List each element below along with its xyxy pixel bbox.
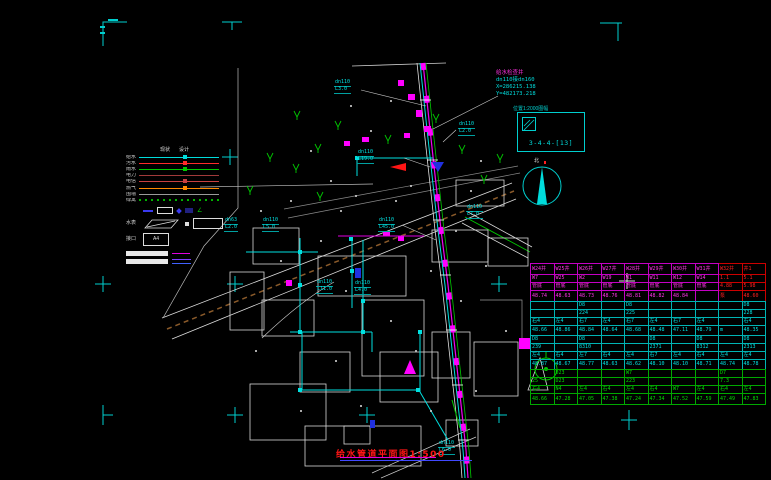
table-cell: 48.84 <box>672 291 696 302</box>
legend: 现状 设计 给水污水雨水电力电信燃气围墙绿篱 ∠ 水表 接口 A4 <box>126 146 226 266</box>
table-cell: 47.38 <box>601 394 625 405</box>
table-cell <box>648 302 672 310</box>
table-cell <box>578 378 602 386</box>
table-cell: W24井 <box>531 264 555 275</box>
table-cell: D7 <box>719 370 743 378</box>
legend-symbols-row: ∠ <box>126 207 226 215</box>
legend-line-sample <box>139 169 219 170</box>
table-cell: 47.34 <box>648 394 672 405</box>
rect-outline-symbol <box>193 218 223 229</box>
legend-line-marker <box>183 179 187 183</box>
table-cell: D8 <box>648 336 672 344</box>
table-section-4: D23W7D725D232237.3右4N4左4右4左4右4W7左4右4左448… <box>530 369 766 405</box>
table-cell: W25 <box>554 275 578 283</box>
legend-row-label: 绿篱 <box>126 198 139 203</box>
table-cell: N4 <box>554 386 578 394</box>
table-cell: 48.74 <box>531 291 555 302</box>
north-label: 北 <box>534 157 539 164</box>
table-cell: 48.82 <box>648 291 672 302</box>
table-cell: 管底 <box>672 283 696 291</box>
table-cell: 右7 <box>578 318 602 326</box>
purple-line-sample <box>172 259 191 260</box>
square-symbol <box>185 222 189 226</box>
table-cell: 左4 <box>601 318 625 326</box>
table-cell <box>672 378 696 386</box>
table-cell: 239 <box>531 344 555 352</box>
drawing-title: 给水管道平面图1:500 <box>336 450 446 460</box>
table-cell: W25井 <box>554 264 578 275</box>
callout-x-coordinate: X=286215.138 <box>496 84 586 91</box>
table-cell: W7 <box>625 370 649 378</box>
table-cell: W26井 <box>578 264 602 275</box>
table-cell: 1.1 <box>719 275 743 283</box>
table-cell <box>695 310 719 318</box>
table-cell: 48.64 <box>601 326 625 336</box>
table-cell: D23 <box>554 378 578 386</box>
table-cell: 48.86 <box>554 326 578 336</box>
table-cell: 47.52 <box>672 394 696 405</box>
legend-line-sample <box>139 157 219 158</box>
table-cell: 管底 <box>578 283 602 291</box>
table-cell <box>672 336 696 344</box>
title-underline-blue <box>340 460 472 461</box>
block-symbol <box>185 208 193 213</box>
table-cell: 4.88 <box>719 283 743 291</box>
manhole-callout: 给水检查井 dn110接dn160 X=286215.138 Y=482173.… <box>496 70 586 98</box>
table-cell: 48.48 <box>648 326 672 336</box>
table-cell: 5.98 <box>742 283 766 291</box>
flow-arrow <box>390 163 406 171</box>
table-cell: 48.62 <box>625 360 649 370</box>
legend-row-label: 给水 <box>126 155 139 160</box>
table-cell: 25 <box>531 378 555 386</box>
table-cell: 47.24 <box>625 394 649 405</box>
table-cell: 管底 <box>531 283 555 291</box>
diamond-symbol <box>176 208 182 214</box>
table-cell <box>601 370 625 378</box>
table-cell: 224 <box>578 310 602 318</box>
table-cell: 左4 <box>531 352 555 360</box>
table-cell: 泵 <box>719 291 743 302</box>
table-cell: 右4 <box>742 318 766 326</box>
sheet-index-box: 位置1:2000图幅 3-4-4-[13] <box>517 112 585 152</box>
table-cell <box>719 318 743 326</box>
table-cell: 左4 <box>578 386 602 394</box>
table-cell <box>648 370 672 378</box>
table-cell: 48.66 <box>531 326 555 336</box>
table-cell <box>695 302 719 310</box>
table-cell: D8 <box>578 302 602 310</box>
table-cell: 管底 <box>625 283 649 291</box>
table-section-2: D8D8D8224225228右4左4右7左4右7左4右7左4右448.6648… <box>530 301 766 336</box>
table-cell: W27井 <box>601 264 625 275</box>
legend-header-design: 设计 <box>179 146 189 154</box>
table-cell <box>625 344 649 352</box>
table-cell: 223 <box>625 378 649 386</box>
table-cell: 48.60 <box>742 291 766 302</box>
angle-symbol: ∠ <box>197 207 202 214</box>
sewer-clusters <box>286 80 530 374</box>
table-cell: 右4 <box>695 352 719 360</box>
table-cell <box>672 370 696 378</box>
table-cell <box>531 310 555 318</box>
table-cell: W11 <box>648 275 672 283</box>
legend-headers: 现状 设计 <box>160 146 226 154</box>
table-cell: 48.35 <box>742 326 766 336</box>
table-cell: 48.74 <box>719 360 743 370</box>
legend-row-label: 污水 <box>126 161 139 166</box>
blue-line-sample <box>172 263 191 264</box>
table-cell <box>695 378 719 386</box>
table-cell: 47.11 <box>672 326 696 336</box>
table-cell: 左4 <box>742 352 766 360</box>
table-cell: 225 <box>625 310 649 318</box>
table-cell: 8310 <box>578 344 602 352</box>
legend-meter-row: 水表 <box>126 218 226 230</box>
table-cell <box>695 291 719 302</box>
legend-header-existing: 现状 <box>160 146 170 154</box>
table-cell: 48.84 <box>578 326 602 336</box>
table-cell: 7.3 <box>719 378 743 386</box>
table-cell: W7 <box>672 386 696 394</box>
table-cell <box>672 310 696 318</box>
table-cell: W14 <box>695 275 719 283</box>
legend-line-sample <box>139 181 219 182</box>
legend-row-label: 雨水 <box>126 167 139 172</box>
table-cell <box>719 310 743 318</box>
table-cell: 48.78 <box>742 360 766 370</box>
table-cell: 47.28 <box>554 394 578 405</box>
table-cell: 48.10 <box>648 360 672 370</box>
table-cell: 228 <box>742 310 766 318</box>
table-cell <box>578 370 602 378</box>
table-cell: W28井 <box>625 264 649 275</box>
table-cell: 右4 <box>531 318 555 326</box>
table-cell: D23 <box>554 370 578 378</box>
table-cell <box>648 310 672 318</box>
table-cell <box>554 344 578 352</box>
road-lines <box>162 63 532 478</box>
table-cell <box>531 302 555 310</box>
table-cell <box>601 310 625 318</box>
table-cell: 48.79 <box>695 326 719 336</box>
legend-rows: 给水污水雨水电力电信燃气围墙绿篱 <box>126 154 226 204</box>
legend-line-sample <box>139 163 219 164</box>
legend-line-sample <box>139 194 219 195</box>
legend-row-label: 电力 <box>126 173 139 178</box>
table-cell: W7 <box>531 275 555 283</box>
joint-code: A4 <box>153 236 159 242</box>
table-cell: 右7 <box>648 352 672 360</box>
table-cell <box>601 378 625 386</box>
legend-line-marker <box>183 186 187 190</box>
table-cell: 管底 <box>695 283 719 291</box>
table-cell: m <box>719 326 743 336</box>
hydrant-marks <box>355 162 444 428</box>
meter-row-label: 水表 <box>126 221 139 226</box>
dash-symbol <box>143 210 153 212</box>
title-underline-magenta <box>340 457 436 458</box>
index-caption: 位置1:2000图幅 <box>513 105 548 112</box>
table-section-3: D8D8D8D8D82398310237183122313左4右4左7右4左4右… <box>530 335 766 370</box>
table-cell: W12 <box>672 275 696 283</box>
callout-y-coordinate: Y=482173.218 <box>496 91 586 98</box>
scalebar-1 <box>126 251 168 256</box>
table-cell: 47.59 <box>695 394 719 405</box>
table-cell: 48.67 <box>554 360 578 370</box>
legend-line-marker <box>183 167 187 171</box>
legend-row: 绿篱 <box>126 197 226 203</box>
table-cell <box>672 344 696 352</box>
legend-scalebars <box>126 250 226 266</box>
table-cell: 48.76 <box>601 291 625 302</box>
table-cell <box>742 378 766 386</box>
table-cell: W1 <box>625 275 649 283</box>
callout-spec: dn110接dn160 <box>496 77 586 84</box>
index-cell-icon <box>522 117 536 131</box>
table-cell: W30井 <box>672 264 696 275</box>
table-cell: W32井 <box>719 264 743 275</box>
legend-joint-row: 接口 A4 <box>126 233 226 246</box>
utility-trunk <box>417 63 471 478</box>
table-cell: 47.83 <box>742 394 766 405</box>
tree-symbols <box>247 111 503 201</box>
table-cell: 管底 <box>601 283 625 291</box>
water-pipe-network <box>246 156 448 440</box>
table-cell <box>719 336 743 344</box>
table-cell: 左4 <box>625 386 649 394</box>
table-cell: D8 <box>531 336 555 344</box>
table-cell: 左4 <box>672 352 696 360</box>
joint-row-label: 接口 <box>126 237 139 242</box>
table-cell <box>695 370 719 378</box>
table-cell: 48.63 <box>554 291 578 302</box>
table-cell: 47.05 <box>578 394 602 405</box>
building-outlines <box>230 180 548 466</box>
table-cell: 管底 <box>648 283 672 291</box>
table-cell <box>672 302 696 310</box>
callout-title: 给水检查井 <box>496 70 586 77</box>
table-cell: 2313 <box>742 344 766 352</box>
legend-line-sample <box>139 175 219 176</box>
table-cell: D8 <box>625 302 649 310</box>
table-cell: 48.63 <box>601 360 625 370</box>
table-cell: W19 <box>601 275 625 283</box>
table-cell: 右7 <box>672 318 696 326</box>
table-cell <box>554 336 578 344</box>
joint-code-box: A4 <box>143 233 169 246</box>
title-block: 给水管道平面图1:500 <box>336 444 446 462</box>
north-arrow: 北 <box>519 160 565 210</box>
pipe-data-table: W24井W25井W26井W27井W28井W29井W30井W31井W32井井1W7… <box>530 263 766 405</box>
table-cell: W2 <box>578 275 602 283</box>
table-cell <box>742 370 766 378</box>
table-cell: 右4 <box>648 386 672 394</box>
table-cell <box>719 302 743 310</box>
map-canvas <box>0 0 771 480</box>
water-meter-icon <box>143 218 181 230</box>
table-cell: 48.66 <box>531 394 555 405</box>
table-cell: 48.87 <box>531 360 555 370</box>
table-cell <box>554 310 578 318</box>
table-cell <box>648 378 672 386</box>
legend-row-label: 电信 <box>126 179 139 184</box>
table-cell <box>531 370 555 378</box>
table-cell: 48.81 <box>625 291 649 302</box>
table-cell: 右4 <box>531 386 555 394</box>
north-arrow-icon <box>519 160 565 210</box>
table-cell: D8 <box>695 336 719 344</box>
table-cell: 左4 <box>695 318 719 326</box>
legend-line-sample <box>139 188 219 189</box>
table-cell: 右7 <box>625 318 649 326</box>
table-cell: 左7 <box>578 352 602 360</box>
table-cell <box>601 302 625 310</box>
table-cell <box>554 302 578 310</box>
table-cell: 右4 <box>554 352 578 360</box>
table-cell: 管底 <box>554 283 578 291</box>
legend-line-marker <box>183 161 187 165</box>
table-cell: D8 <box>742 302 766 310</box>
box-symbol <box>157 207 173 214</box>
table-cell: 左4 <box>695 386 719 394</box>
table-section-1: W24井W25井W26井W27井W28井W29井W30井W31井W32井井1W7… <box>530 263 766 302</box>
table-cell: 8312 <box>695 344 719 352</box>
legend-row-label: 围墙 <box>126 192 139 197</box>
table-cell: 48.73 <box>578 291 602 302</box>
table-cell: 右4 <box>601 352 625 360</box>
table-cell: 48.71 <box>695 360 719 370</box>
table-cell: 48.77 <box>578 360 602 370</box>
sheet-number: 3-4-4-[13] <box>518 139 584 147</box>
table-cell <box>601 344 625 352</box>
table-cell: W31井 <box>695 264 719 275</box>
table-cell: 左4 <box>648 318 672 326</box>
table-cell: D8 <box>578 336 602 344</box>
table-cell: D8 <box>742 336 766 344</box>
legend-line-marker <box>183 155 187 159</box>
table-cell <box>625 336 649 344</box>
table-cell: 左4 <box>742 386 766 394</box>
legend-line-sample <box>139 199 219 201</box>
table-cell: 48.68 <box>625 326 649 336</box>
table-cell: 右4 <box>601 386 625 394</box>
legend-row-label: 燃气 <box>126 186 139 191</box>
table-cell: 左4 <box>625 352 649 360</box>
magenta-line-sample <box>172 253 190 254</box>
table-cell: 左4 <box>554 318 578 326</box>
table-cell: 47.49 <box>719 394 743 405</box>
table-cell: 2371 <box>648 344 672 352</box>
table-cell: 右4 <box>719 386 743 394</box>
table-cell: 48.10 <box>672 360 696 370</box>
table-cell: 井1 <box>742 264 766 275</box>
table-cell: W29井 <box>648 264 672 275</box>
table-cell <box>601 336 625 344</box>
table-cell: 左4 <box>719 352 743 360</box>
cad-drawing-screen: { "callout": { "title": "给水检查井", "spec":… <box>0 0 771 480</box>
table-cell <box>719 344 743 352</box>
scalebar-2 <box>126 259 168 264</box>
table-cell: 5.1 <box>742 275 766 283</box>
